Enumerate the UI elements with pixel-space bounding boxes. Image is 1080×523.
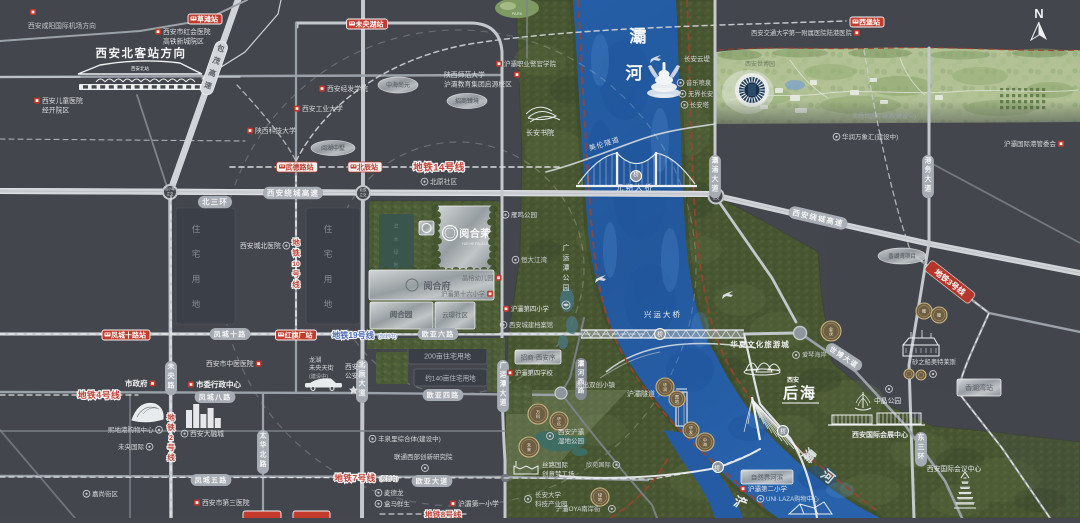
svg-text:沪灞第一小学: 沪灞第一小学: [458, 499, 499, 508]
svg-text:音乐喷泉: 音乐喷泉: [686, 78, 712, 87]
svg-text:未央国际: 未央国际: [118, 442, 145, 451]
svg-text:欧亚六路: 欧亚六路: [422, 330, 455, 339]
svg-text:环: 环: [918, 453, 925, 461]
svg-text:北原社区: 北原社区: [430, 177, 457, 186]
svg-text:立交: 立交: [167, 191, 174, 196]
svg-text:欧亚四路: 欧亚四路: [427, 391, 460, 400]
svg-text:沪灞第十六小学: 沪灞第十六小学: [441, 289, 485, 298]
svg-text:沪灞第二小学: 沪灞第二小学: [748, 484, 788, 493]
svg-text:香湖湾站: 香湖湾站: [965, 383, 993, 392]
svg-text:西安工业大学: 西安工业大学: [302, 104, 343, 113]
svg-text:雁鸣公园: 雁鸣公园: [511, 210, 537, 219]
svg-text:桥: 桥: [633, 171, 639, 179]
svg-text:地: 地: [324, 299, 333, 309]
svg-text:自然界河滨: 自然界河滨: [751, 473, 784, 482]
svg-text:创意梦工场: 创意梦工场: [542, 469, 575, 478]
svg-text:西安交通大学第一附属医院陆港医院: 西安交通大学第一附属医院陆港医院: [751, 28, 852, 37]
svg-text:地: 地: [192, 299, 201, 309]
svg-text:陕西科技大学: 陕西科技大学: [255, 126, 296, 135]
svg-text:沪灞隧道: 沪灞隧道: [627, 389, 655, 398]
svg-text:约140亩住宅用地: 约140亩住宅用地: [425, 374, 476, 383]
svg-text:西安市第三医院: 西安市第三医院: [202, 498, 250, 507]
svg-text:西安世博园: 西安世博园: [745, 60, 775, 68]
svg-text:凤城八路: 凤城八路: [199, 393, 232, 402]
svg-text:务: 务: [925, 165, 932, 174]
svg-text:长安大学: 长安大学: [535, 490, 562, 499]
svg-text:北辰站: 北辰站: [357, 163, 378, 172]
svg-text:未: 未: [168, 362, 176, 371]
svg-text:园: 园: [563, 284, 570, 292]
svg-text:沪灞第四学校: 沪灞第四学校: [515, 368, 553, 377]
svg-text:路: 路: [168, 381, 176, 390]
svg-text:河: 河: [578, 367, 585, 376]
svg-text:西安: 西安: [787, 376, 799, 384]
svg-text:丝路国际: 丝路国际: [542, 460, 569, 469]
svg-text:宅: 宅: [324, 249, 333, 259]
svg-text:西安儿童医院: 西安儿童医院: [42, 96, 83, 105]
svg-text:用: 用: [324, 274, 333, 284]
svg-text:UNI·LAZA购物中心: UNI·LAZA购物中心: [766, 495, 819, 503]
svg-text:润: 润: [663, 386, 667, 393]
svg-text:浦: 浦: [712, 165, 719, 174]
svg-text:云璟社区: 云璟社区: [442, 310, 469, 319]
svg-text:道: 道: [500, 398, 507, 407]
svg-text:号: 号: [167, 443, 175, 452]
svg-text:阅合府: 阅合府: [423, 280, 450, 291]
svg-text:西堡站: 西堡站: [859, 18, 880, 27]
svg-text:港: 港: [925, 155, 932, 164]
svg-text:市政府: 市政府: [125, 378, 148, 388]
svg-text:未央天街: 未央天街: [309, 364, 334, 372]
svg-text:桥: 桥: [780, 428, 786, 436]
svg-text:长安塔: 长安塔: [690, 100, 710, 109]
svg-text:号: 号: [292, 270, 300, 279]
svg-text:地铁8号线: 地铁8号线: [425, 510, 461, 519]
svg-text:YUE HE PALACE: YUE HE PALACE: [462, 242, 489, 246]
svg-text:运: 运: [500, 371, 507, 379]
svg-text:道: 道: [712, 183, 719, 192]
svg-text:华夏文化旅游城: 华夏文化旅游城: [730, 339, 790, 349]
svg-text:北辰: 北辰: [360, 187, 367, 192]
svg-text:西安北站: 西安北站: [131, 65, 149, 72]
svg-text:武德路站: 武德路站: [286, 163, 314, 172]
svg-text:10: 10: [292, 261, 300, 268]
svg-text:线: 线: [167, 452, 175, 462]
svg-text:大: 大: [925, 174, 932, 183]
svg-text:线: 线: [292, 279, 300, 289]
svg-text:北三环: 北三环: [202, 197, 228, 207]
svg-text:阅合茉: 阅合茉: [459, 227, 491, 240]
svg-text:潭: 潭: [500, 379, 507, 388]
svg-text:爱琴海岸: 爱琴海岸: [802, 351, 827, 359]
svg-text:太: 太: [260, 431, 268, 440]
svg-text:(规划中): (规划中): [378, 332, 397, 340]
svg-text:铁: 铁: [167, 422, 175, 432]
svg-text:草滩站: 草滩站: [197, 15, 218, 24]
svg-text:腾出双创小镇: 腾出双创小镇: [576, 380, 616, 389]
svg-text:灞: 灞: [630, 26, 647, 46]
svg-text:PARK: PARK: [512, 11, 523, 16]
svg-text:住: 住: [324, 224, 333, 234]
svg-text:用: 用: [192, 274, 201, 284]
svg-text:沪灞国际港管委会: 沪灞国际港管委会: [1004, 139, 1057, 148]
svg-text:西安浐灞: 西安浐灞: [558, 427, 585, 436]
svg-text:桥: 桥: [714, 465, 720, 473]
svg-text:砂之船奥特莱斯: 砂之船奥特莱斯: [912, 357, 957, 366]
svg-text:招商·西安序: 招商·西安序: [521, 353, 556, 362]
svg-text:市委行政中心: 市委行政中心: [196, 379, 241, 389]
svg-text:华: 华: [260, 440, 267, 449]
svg-text:长安云堤: 长安云堤: [684, 54, 711, 63]
svg-text:西安城北医院: 西安城北医院: [240, 241, 281, 250]
svg-text:西安国际会议中心: 西安国际会议中心: [927, 464, 982, 473]
svg-text:经开院区: 经开院区: [42, 105, 69, 114]
svg-text:沪灞教育集团启源校区: 沪灞教育集团启源校区: [444, 79, 512, 88]
svg-text:桥: 桥: [657, 331, 663, 339]
svg-text:无界长安: 无界长安: [688, 89, 713, 98]
svg-text:立交: 立交: [360, 192, 367, 197]
svg-text:中晶公园: 中晶公园: [874, 396, 901, 405]
svg-text:中海尚元: 中海尚元: [386, 81, 410, 89]
svg-text:央: 央: [168, 371, 176, 380]
svg-text:道: 道: [925, 183, 932, 192]
svg-text:元朔大桥: 元朔大桥: [616, 182, 654, 192]
svg-text:(建设中): (建设中): [309, 372, 328, 380]
svg-text:西安咸阳国际机场方向: 西安咸阳国际机场方向: [28, 21, 96, 30]
svg-text:潭: 潭: [563, 263, 570, 272]
svg-text:西安大融城: 西安大融城: [190, 429, 224, 438]
svg-text:灞: 灞: [578, 358, 585, 367]
svg-text:盒马鲜生: 盒马鲜生: [384, 499, 411, 508]
svg-text:凤城十路站: 凤城十路站: [111, 331, 146, 340]
svg-text:西安北客站方向: 西安北客站方向: [96, 46, 187, 60]
svg-text:2: 2: [169, 433, 173, 442]
svg-text:北: 北: [260, 450, 267, 459]
svg-text:(规划中): (规划中): [379, 475, 398, 483]
svg-text:西安市: 西安市: [345, 362, 366, 371]
svg-text:沪灞职业警官学院: 沪灞职业警官学院: [504, 59, 557, 68]
svg-text:湿地公园: 湿地公园: [558, 436, 584, 445]
svg-text:滨: 滨: [393, 223, 398, 230]
svg-text:西安经发学院: 西安经发学院: [327, 84, 368, 93]
svg-text:西安市红会医院: 西安市红会医院: [163, 27, 211, 36]
svg-text:地铁14号线: 地铁14号线: [413, 161, 465, 173]
svg-text:灞: 灞: [712, 155, 719, 164]
svg-text:嘉尚街区: 嘉尚街区: [92, 489, 119, 498]
svg-text:西安国际会展中心: 西安国际会展中心: [852, 430, 908, 439]
svg-text:香湖湾项目: 香湖湾项目: [888, 252, 916, 260]
svg-text:丰泉里综合体(建设中): 丰泉里综合体(建设中): [378, 434, 441, 443]
svg-text:兴运大桥: 兴运大桥: [644, 309, 682, 319]
svg-text:未央湖站: 未央湖站: [356, 20, 384, 29]
svg-text:长安书院: 长安书院: [526, 128, 554, 137]
svg-text:恒大江湾: 恒大江湾: [521, 255, 548, 264]
svg-text:高铁新城院区: 高铁新城院区: [163, 36, 204, 45]
svg-text:红旗厂站: 红旗厂站: [285, 331, 313, 340]
svg-text:路: 路: [260, 459, 268, 468]
svg-text:阅湖中墅: 阅湖中墅: [321, 144, 345, 152]
svg-text:地: 地: [292, 237, 300, 247]
svg-text:阅合园: 阅合园: [390, 309, 413, 319]
svg-text:晶榕幼儿园: 晶榕幼儿园: [462, 273, 493, 282]
svg-text:大: 大: [712, 174, 719, 183]
svg-text:华润万象汇(建设中): 华润万象汇(建设中): [842, 132, 898, 141]
svg-text:水: 水: [393, 236, 398, 243]
svg-text:运: 运: [563, 254, 570, 262]
svg-text:道: 道: [359, 388, 366, 397]
svg-text:东: 东: [918, 433, 925, 442]
svg-text:N: N: [1034, 6, 1043, 21]
svg-text:大: 大: [500, 388, 507, 397]
svg-text:河: 河: [626, 64, 643, 83]
svg-text:地铁7号线: 地铁7号线: [334, 473, 375, 483]
svg-text:招商臻境: 招商臻境: [455, 97, 479, 105]
svg-text:陕西师范大学: 陕西师范大学: [444, 70, 485, 79]
svg-text:住: 住: [192, 224, 201, 234]
svg-text:宅: 宅: [192, 249, 201, 259]
svg-text:熙地港购物中心: 熙地港购物中心: [108, 425, 154, 434]
svg-text:后海: 后海: [783, 384, 817, 402]
svg-text:王杨世园环球港(建设中): 王杨世园环球港(建设中): [852, 112, 916, 120]
svg-text:龙湖: 龙湖: [309, 356, 321, 364]
svg-text:麦德龙: 麦德龙: [384, 488, 404, 497]
svg-text:欧亚大道: 欧亚大道: [416, 477, 449, 486]
svg-text:凤城十路: 凤城十路: [214, 330, 247, 339]
svg-text:欣苑国际: 欣苑国际: [586, 461, 611, 469]
svg-text:地铁19号线: 地铁19号线: [332, 330, 375, 340]
svg-text:包小寨: 包小寨: [165, 186, 176, 191]
svg-text:200亩住宅用地: 200亩住宅用地: [424, 352, 471, 361]
svg-text:西安市中医医院: 西安市中医医院: [206, 359, 254, 368]
svg-text:绿: 绿: [393, 249, 398, 256]
svg-text:铁: 铁: [292, 248, 300, 258]
svg-text:沪灞第四小学: 沪灞第四小学: [511, 304, 549, 313]
svg-text:三: 三: [918, 443, 925, 451]
svg-text:西安绕城高速: 西安绕城高速: [267, 188, 319, 198]
svg-text:西安城建档案馆: 西安城建档案馆: [509, 320, 553, 329]
svg-text:地铁4号线: 地铁4号线: [78, 389, 121, 400]
svg-text:公: 公: [563, 274, 570, 282]
svg-text:公安局: 公安局: [345, 371, 366, 380]
svg-text:地: 地: [167, 412, 175, 422]
svg-text:联通西部创新研究院: 联通西部创新研究院: [394, 452, 453, 461]
svg-text:广: 广: [563, 243, 570, 252]
svg-text:广: 广: [500, 360, 507, 369]
svg-text:浐灞OYA南岸街: 浐灞OYA南岸街: [556, 504, 601, 513]
svg-text:凤城五路: 凤城五路: [195, 476, 228, 485]
